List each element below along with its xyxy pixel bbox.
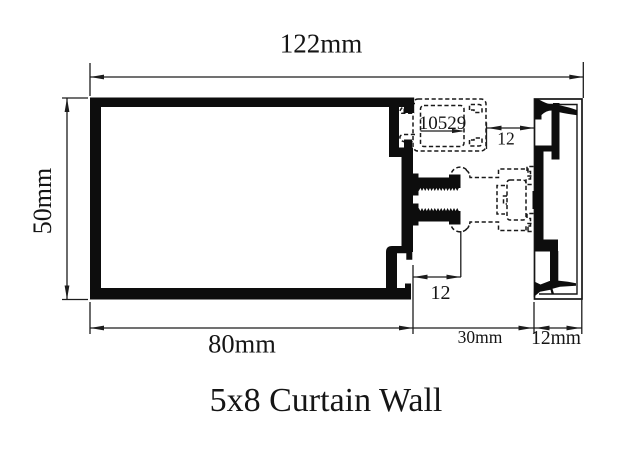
svg-text:12mm: 12mm <box>531 328 581 349</box>
svg-text:80mm: 80mm <box>208 329 276 359</box>
svg-text:10529: 10529 <box>419 113 467 134</box>
svg-text:12: 12 <box>431 282 451 304</box>
svg-text:122mm: 122mm <box>280 29 363 59</box>
svg-text:50mm: 50mm <box>28 168 57 234</box>
svg-text:5x8 Curtain Wall: 5x8 Curtain Wall <box>210 382 443 419</box>
svg-text:12: 12 <box>497 129 515 149</box>
svg-text:30mm: 30mm <box>458 327 503 347</box>
